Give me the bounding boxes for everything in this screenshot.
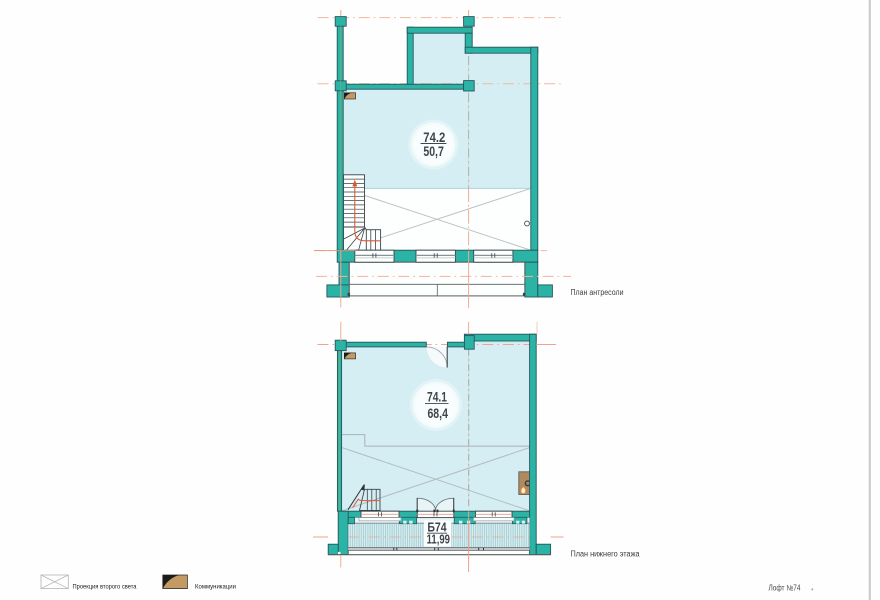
svg-text:50,7: 50,7 [423,144,444,159]
svg-text:Проекция второго света: Проекция второго света [73,583,137,590]
svg-text:74.1: 74.1 [427,390,447,405]
svg-text:План нижнего этажа: План нижнего этажа [571,550,641,559]
svg-text:Коммуникации: Коммуникации [195,583,236,590]
svg-text:74.2: 74.2 [423,130,445,145]
svg-text:68,4: 68,4 [427,406,448,421]
svg-text:Лофт №74: Лофт №74 [769,584,802,593]
svg-text:11,99: 11,99 [427,532,450,547]
svg-text:План антресоли: План антресоли [571,288,624,297]
